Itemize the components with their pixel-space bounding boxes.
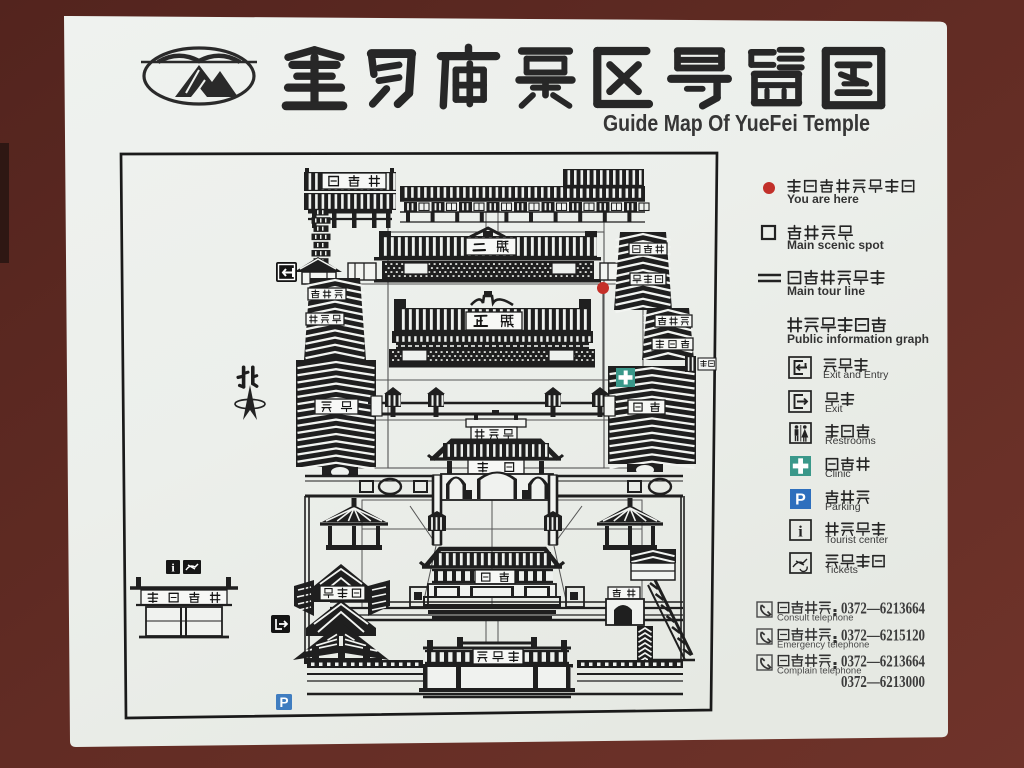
svg-text:Tourist center: Tourist center xyxy=(825,534,889,546)
svg-text:Public information graph: Public information graph xyxy=(787,332,929,346)
svg-text:You are here: You are here xyxy=(787,192,859,206)
svg-text:Main tour line: Main tour line xyxy=(787,284,865,298)
svg-text:i: i xyxy=(798,524,803,541)
svg-text:P: P xyxy=(279,695,288,710)
svg-text:P: P xyxy=(795,492,806,509)
svg-text:Clinic: Clinic xyxy=(825,468,851,480)
svg-text:Parking: Parking xyxy=(825,501,861,513)
svg-text:Consult telephone: Consult telephone xyxy=(777,613,854,624)
svg-text:0372—6213664: 0372—6213664 xyxy=(841,599,925,618)
svg-text:0372—6213000: 0372—6213000 xyxy=(841,672,925,691)
svg-text:Restrooms: Restrooms xyxy=(825,435,876,447)
svg-text:Guide Map Of YueFei Temple: Guide Map Of YueFei Temple xyxy=(603,110,870,136)
svg-text:Exit: Exit xyxy=(825,403,843,415)
svg-text:Main scenic spot: Main scenic spot xyxy=(787,238,884,252)
svg-text:Exit and Entry: Exit and Entry xyxy=(823,369,889,381)
svg-text:Tickets: Tickets xyxy=(825,564,858,576)
svg-text:Emergency telephone: Emergency telephone xyxy=(777,640,869,651)
